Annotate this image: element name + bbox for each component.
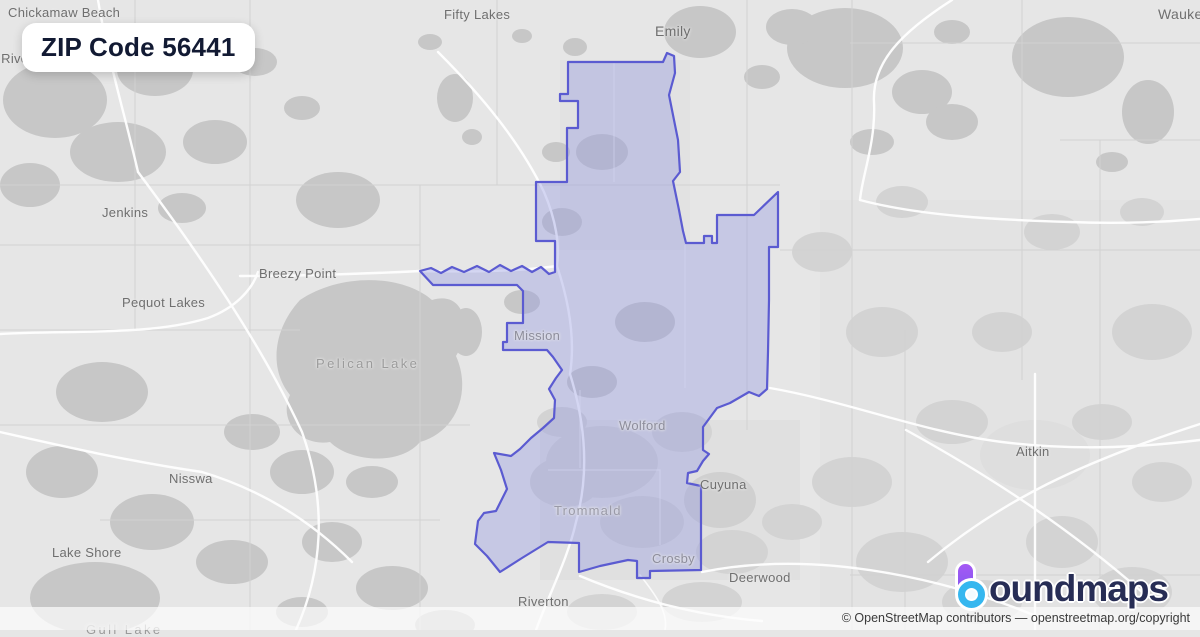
place-label-fifty-lakes: Fifty Lakes bbox=[444, 7, 510, 22]
place-label-wolford: Wolford bbox=[619, 418, 666, 433]
place-label-cuyuna: Cuyuna bbox=[700, 477, 747, 492]
place-label-lake-shore: Lake Shore bbox=[52, 545, 122, 560]
osm-copyright-link[interactable]: openstreetmap.org/copyright bbox=[1031, 611, 1190, 625]
place-label-emily: Emily bbox=[655, 23, 691, 39]
place-label-chickamaw-beach: Chickamaw Beach bbox=[8, 5, 120, 20]
map-canvas[interactable] bbox=[0, 0, 1200, 630]
boundmaps-logo[interactable]: oundmaps bbox=[958, 562, 1168, 608]
place-label-mission: Mission bbox=[514, 328, 560, 343]
attribution-bar: © OpenStreetMap contributors — openstree… bbox=[0, 607, 1200, 630]
zip-title-card: ZIP Code 56441 bbox=[22, 23, 255, 72]
map-svg bbox=[0, 0, 1200, 630]
place-label-jenkins: Jenkins bbox=[102, 205, 148, 220]
place-label-aitkin: Aitkin bbox=[1016, 444, 1050, 459]
osm-attribution-text: © OpenStreetMap contributors — bbox=[842, 611, 1031, 625]
place-label-deerwood: Deerwood bbox=[729, 570, 791, 585]
place-label-trommald: Trommald bbox=[554, 503, 622, 518]
place-label-breezy-point: Breezy Point bbox=[259, 266, 336, 281]
boundmaps-b-pin-icon bbox=[958, 564, 988, 608]
place-label-pelican-lake: Pelican Lake bbox=[316, 356, 419, 371]
page-title: ZIP Code 56441 bbox=[41, 32, 236, 62]
boundmaps-wordmark: oundmaps bbox=[989, 570, 1168, 608]
logo-pin-bowl bbox=[958, 581, 985, 608]
place-label-nisswa: Nisswa bbox=[169, 471, 213, 486]
place-label-waukenabo: Waukenabo bbox=[1158, 6, 1200, 22]
place-label-pequot-lakes: Pequot Lakes bbox=[122, 295, 205, 310]
place-label-crosby: Crosby bbox=[652, 551, 695, 566]
